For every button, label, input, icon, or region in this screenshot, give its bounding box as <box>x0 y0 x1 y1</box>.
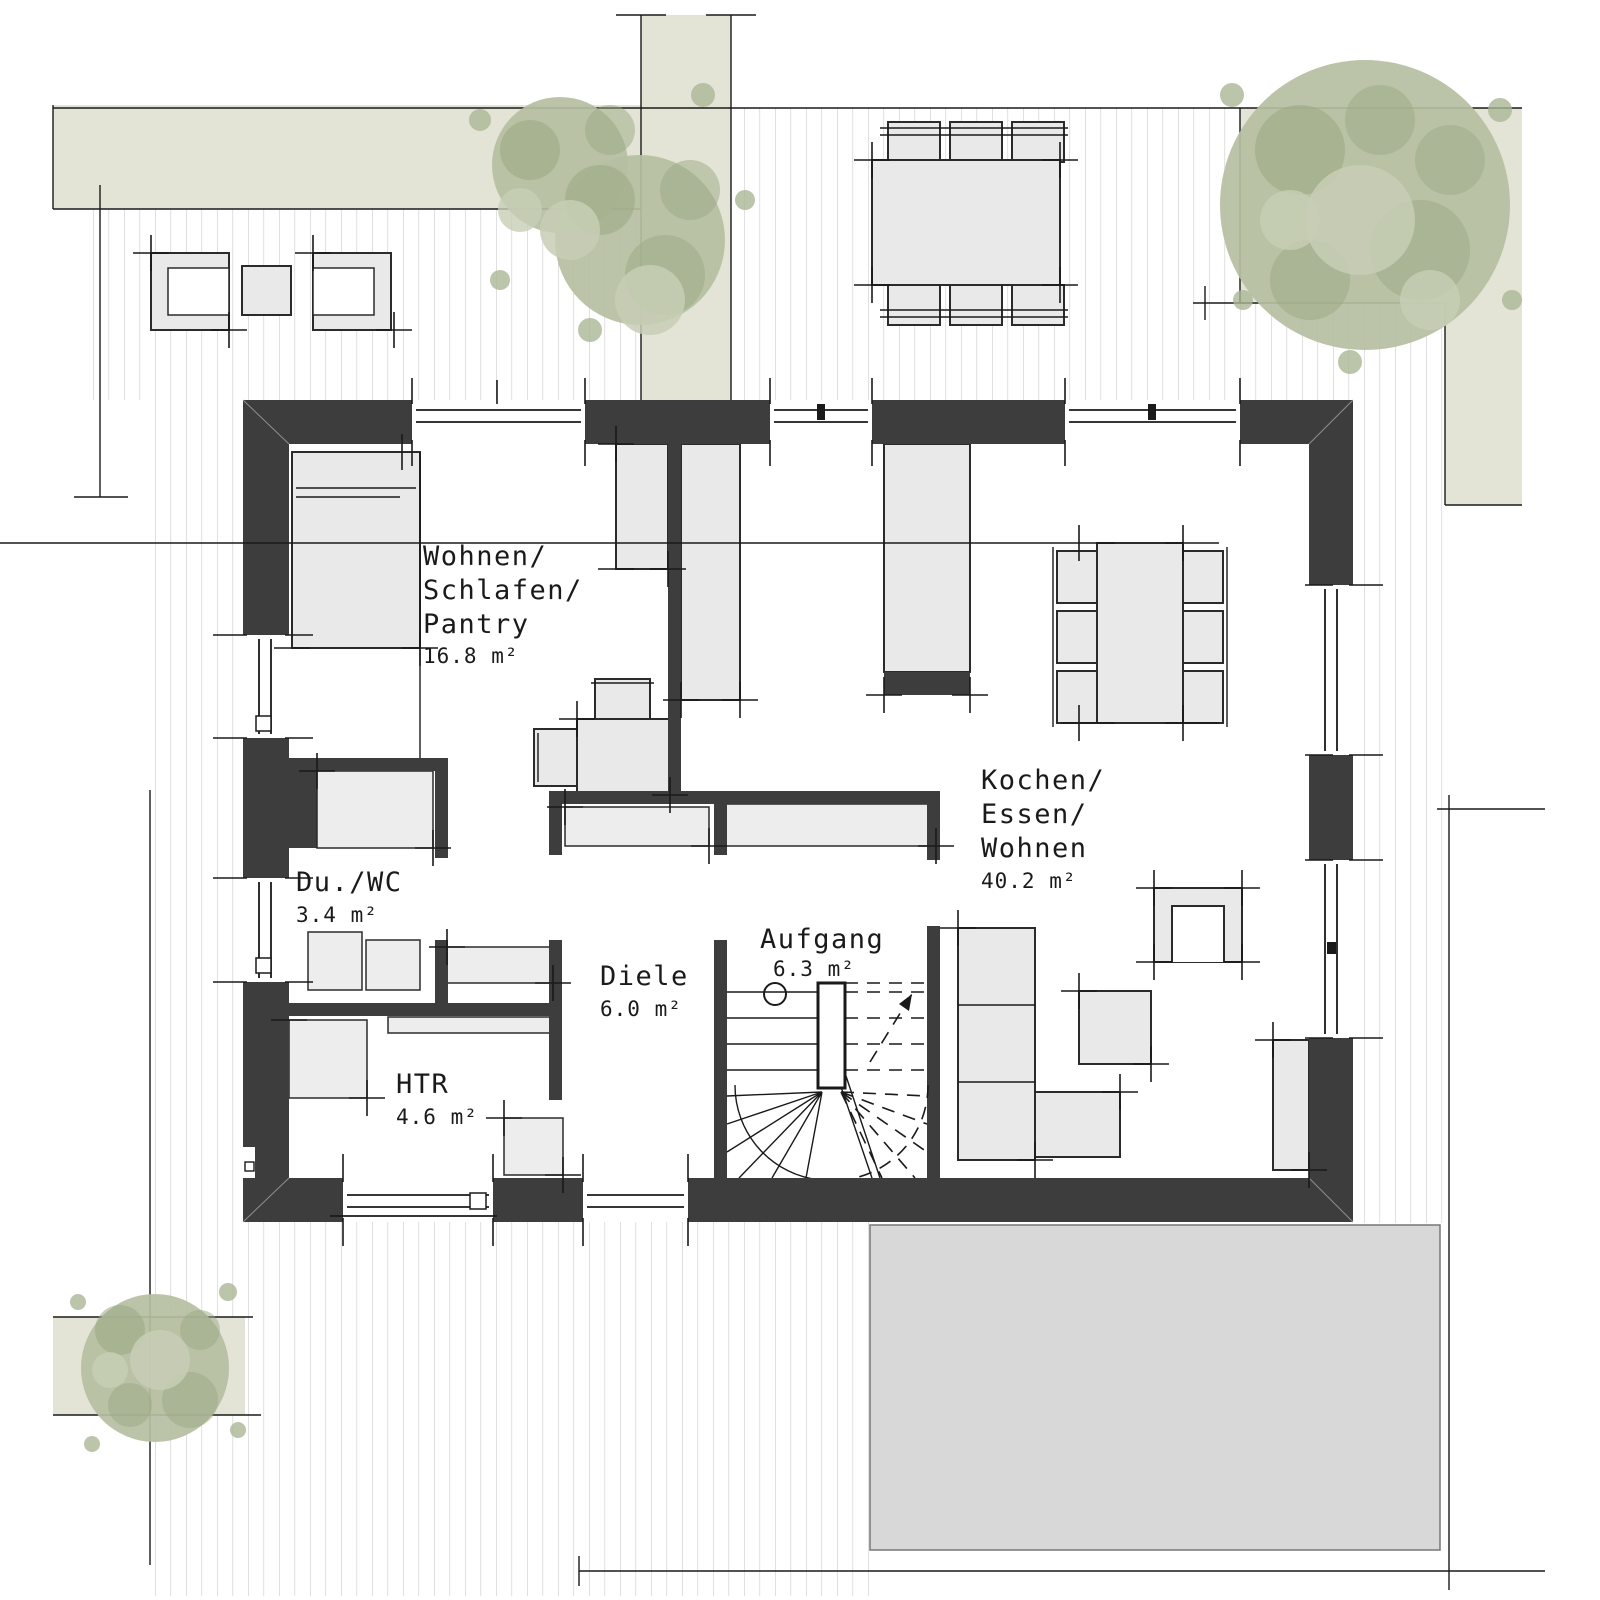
sofa <box>958 928 1035 1160</box>
room-label-kochen-line3: Wohnen <box>981 833 1088 864</box>
dining-chair <box>1057 551 1097 603</box>
terrace-chair <box>950 285 1002 325</box>
wc <box>366 940 420 990</box>
shower <box>317 771 433 848</box>
room-area-duwc: 3.4 m² <box>296 903 378 927</box>
dining-chair <box>1057 671 1097 723</box>
room-area-diele: 6.0 m² <box>600 997 682 1021</box>
kitchen-tall-cabinet <box>681 444 740 700</box>
sofa-chaise <box>1035 1092 1120 1157</box>
kitchen-counter-row <box>724 804 936 846</box>
terrace-dining-group <box>872 122 1068 325</box>
dining-chair <box>1057 611 1097 663</box>
room-label-aufgang: Aufgang <box>760 924 884 955</box>
room-label-kochen-line1: Kochen/ <box>981 765 1105 796</box>
room-label-diele: Diele <box>600 961 689 992</box>
terrace-table <box>872 160 1060 285</box>
dining-chair <box>1183 611 1223 663</box>
hall-wardrobe <box>565 807 709 846</box>
htr-counter <box>388 1017 561 1033</box>
room-label-duwc: Du./WC <box>296 867 403 898</box>
room-label-kochen-line2: Essen/ <box>981 799 1088 830</box>
pantry-cabinet <box>616 444 668 569</box>
stair-spine <box>818 983 845 1088</box>
dining-table <box>1097 543 1183 723</box>
room-label-wohnen-line1: Wohnen/ <box>423 541 547 572</box>
room-label-wohnen-line2: Schlafen/ <box>423 575 583 606</box>
chair <box>534 729 577 786</box>
kitchen-island-end <box>884 672 970 695</box>
bed <box>292 452 420 648</box>
room-label-wohnen-line3: Pantry <box>423 609 530 640</box>
sideboard <box>1273 1040 1309 1170</box>
garage-slab <box>870 1225 1440 1550</box>
terrace-chair <box>1012 285 1064 325</box>
dining-chair <box>1183 671 1223 723</box>
room-area-kochen: 40.2 m² <box>981 869 1077 893</box>
floor-plan-canvas: Wohnen/ Schlafen/ Pantry 16.8 m² Kochen/… <box>0 0 1600 1600</box>
stove-opening <box>1172 906 1224 962</box>
room-area-wohnen: 16.8 m² <box>423 644 519 668</box>
terrace-chair <box>888 285 940 325</box>
kitchen-island <box>884 444 970 672</box>
washer <box>289 1020 367 1098</box>
hall-closet <box>447 947 553 983</box>
htr-appliance <box>504 1118 563 1175</box>
room-label-htr: HTR <box>396 1069 449 1100</box>
floor-plan-svg: Wohnen/ Schlafen/ Pantry 16.8 m² Kochen/… <box>0 0 1600 1600</box>
washbasin <box>308 932 362 990</box>
dining-chair <box>1183 551 1223 603</box>
chair <box>595 679 650 719</box>
room-area-htr: 4.6 m² <box>396 1105 478 1129</box>
coffee-table <box>1079 991 1151 1064</box>
patio-side-table <box>242 266 291 315</box>
room-area-aufgang: 6.3 m² <box>773 957 855 981</box>
green-strip-right <box>1445 303 1522 505</box>
small-table <box>577 719 670 795</box>
